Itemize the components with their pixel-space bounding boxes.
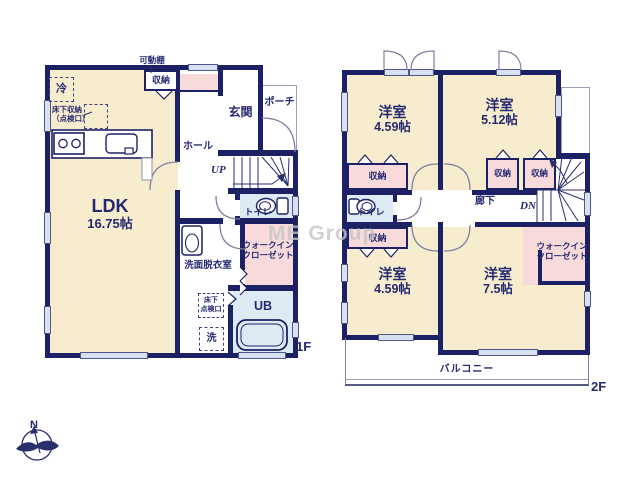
hatch-label: 点検口 — [201, 306, 222, 314]
casement-window-arcs — [384, 51, 521, 70]
floor1-label: 1F — [296, 340, 311, 355]
yukashita-line2: （点検口） — [52, 115, 90, 124]
wic-2f-label: ウォークイン クローゼット — [534, 242, 590, 262]
washbasin-icon — [182, 226, 202, 255]
room-size: 4.59帖 — [347, 282, 438, 296]
balcony-rail — [345, 379, 589, 380]
shoe-cabinet — [180, 74, 218, 92]
closet-1f: 収納 — [144, 70, 178, 91]
dn-label: DN — [520, 200, 536, 213]
ldk-size: 16.75帖 — [45, 217, 175, 232]
window — [584, 291, 591, 307]
wic-line2: クローゼット — [241, 251, 295, 261]
closet-2f: 収納 — [523, 158, 556, 190]
wall — [342, 70, 561, 75]
closet-label: 収納 — [368, 171, 386, 181]
wall — [475, 222, 585, 227]
wall — [342, 190, 412, 195]
window — [584, 192, 591, 216]
wall — [228, 285, 298, 291]
floorplan-image: 収納 冷 床下 点検口 洗 収納 収納 収納 収納 — [0, 0, 640, 480]
washer-space: 洗 — [199, 327, 224, 351]
yukashita-label: 床下収納 （点検口） — [52, 106, 90, 123]
compass-north-label: N — [30, 419, 38, 432]
wall — [393, 195, 397, 202]
stairs-1f — [233, 157, 289, 188]
window — [80, 352, 148, 359]
hatch-label: 床下 — [204, 297, 218, 305]
window — [555, 95, 562, 117]
up-label: UP — [211, 164, 226, 177]
floor-inspection-hatch: 床下 点検口 — [198, 293, 224, 318]
ldk-label: LDK 16.75帖 — [45, 196, 175, 232]
room-name: 洋室 — [347, 266, 438, 282]
porch-outline — [262, 85, 297, 151]
balcony-rail — [345, 384, 589, 386]
yoshitsu3-label: 洋室 4.59帖 — [347, 266, 438, 296]
genkan-label: 玄関 — [223, 106, 258, 120]
wall — [175, 218, 223, 224]
window — [378, 334, 414, 341]
porch-label: ポーチ — [262, 97, 297, 109]
wic-1f-label: ウォークイン クローゼット — [241, 241, 295, 261]
yoshitsu4-label: 洋室 7.5帖 — [438, 266, 558, 296]
wic-line2: クローゼット — [534, 252, 590, 262]
window — [188, 64, 218, 71]
hall-label: ホール — [176, 141, 220, 153]
wall — [218, 150, 298, 156]
window — [341, 302, 348, 324]
window — [496, 69, 521, 76]
balcony-rail — [588, 355, 589, 385]
room-name: 洋室 — [438, 266, 558, 282]
floor2-label: 2F — [591, 380, 606, 395]
closet-label: 収納 — [494, 169, 511, 179]
fridge-label: 冷 — [56, 83, 67, 96]
room-size: 4.59帖 — [347, 120, 438, 134]
ub-label: UB — [233, 299, 293, 313]
washer-label: 洗 — [207, 333, 217, 345]
kadodana-label: 可動棚 — [130, 56, 174, 66]
window — [292, 196, 299, 216]
window — [238, 352, 286, 359]
yoshitsu1-label: 洋室 4.59帖 — [347, 104, 438, 134]
wall — [472, 190, 537, 195]
window — [44, 100, 51, 132]
ldk-name: LDK — [45, 196, 175, 217]
window — [292, 322, 299, 338]
toilet-2f-label: トイレ — [348, 207, 394, 217]
senmen-label: 洗面脱衣室 — [177, 261, 239, 272]
closet-label: 収納 — [531, 169, 548, 179]
closet-label: 収納 — [152, 75, 170, 85]
wall — [218, 70, 223, 96]
fridge-space: 冷 — [49, 77, 74, 102]
balcony-label: バルコニー — [428, 364, 506, 376]
window — [44, 306, 51, 334]
yoshitsu2-label: 洋室 5.12帖 — [443, 97, 556, 127]
wall — [258, 65, 263, 156]
window — [409, 69, 434, 76]
window — [478, 349, 538, 356]
wall — [438, 75, 443, 190]
closet-2f: 収納 — [347, 163, 408, 190]
rouka-label: 廊下 — [465, 196, 505, 208]
wall — [235, 194, 240, 200]
toilet-1f-label: トイレ — [238, 207, 278, 217]
void-outline — [561, 87, 590, 156]
closet-2f: 収納 — [486, 158, 519, 190]
room-name: 洋室 — [443, 97, 556, 113]
room-name: 洋室 — [347, 104, 438, 120]
room-size: 7.5帖 — [438, 282, 558, 296]
window — [384, 69, 409, 76]
room-size: 5.12帖 — [443, 113, 556, 127]
